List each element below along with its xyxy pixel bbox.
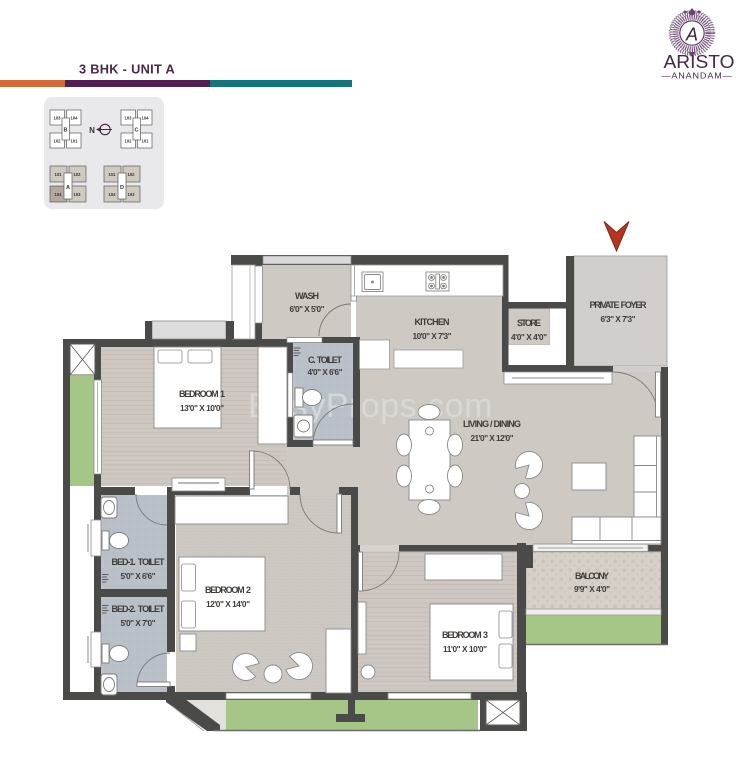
svg-text:4'0" X 4'0": 4'0" X 4'0" [511,332,547,342]
svg-text:102: 102 [128,172,136,177]
svg-text:3 BHK - UNIT A: 3 BHK - UNIT A [79,62,175,77]
svg-text:BEDROOM 1: BEDROOM 1 [179,389,225,399]
svg-text:BALCONY: BALCONY [575,571,609,581]
svg-text:104: 104 [142,116,150,121]
svg-text:5'0" X 6'6": 5'0" X 6'6" [121,571,156,581]
svg-text:102: 102 [54,139,62,144]
svg-text:101: 101 [55,172,63,177]
svg-text:ARISTO: ARISTO [664,51,735,72]
svg-text:10'0" X 7'3": 10'0" X 7'3" [413,331,452,341]
svg-text:101: 101 [142,139,150,144]
svg-text:21'0" X 12'0": 21'0" X 12'0" [471,433,514,443]
svg-text:11'0" X 10'0": 11'0" X 10'0" [443,644,487,654]
svg-text:D: D [120,185,124,191]
svg-text:12'0" X 14'0": 12'0" X 14'0" [206,599,250,609]
svg-text:6'3" X 7'3": 6'3" X 7'3" [601,314,636,324]
svg-text:103: 103 [74,192,82,197]
svg-text:N: N [89,126,95,135]
svg-text:BEDROOM 2: BEDROOM 2 [205,585,251,595]
svg-text:A: A [685,25,698,45]
svg-text:WASH: WASH [295,291,319,301]
svg-text:6'0" X 5'0": 6'0" X 5'0" [290,304,325,314]
svg-text:104: 104 [55,192,63,197]
svg-text:B: B [64,128,68,134]
svg-text:9'9" X 4'0": 9'9" X 4'0" [574,584,610,594]
svg-text:LIVING / DINING: LIVING / DINING [463,419,521,429]
svg-text:KITCHEN: KITCHEN [415,317,450,327]
svg-text:102: 102 [125,139,133,144]
svg-text:102: 102 [74,172,82,177]
svg-text:BED-2. TOILET: BED-2. TOILET [112,604,166,614]
svg-text:103: 103 [125,116,133,121]
svg-text:13'0" X 10'0": 13'0" X 10'0" [180,403,224,413]
svg-text:BEDROOM 3: BEDROOM 3 [442,630,488,640]
svg-text:—ANANDAM—: —ANANDAM— [662,71,733,81]
svg-text:BED-1. TOILET: BED-1. TOILET [112,557,166,567]
svg-text:4'0" X 6'6": 4'0" X 6'6" [308,367,343,377]
svg-text:104: 104 [109,192,117,197]
svg-text:5'0" X 7'0": 5'0" X 7'0" [121,618,156,628]
svg-text:103: 103 [128,192,136,197]
svg-text:A: A [66,185,70,191]
svg-text:103: 103 [54,116,62,121]
svg-text:104: 104 [71,116,79,121]
svg-text:101: 101 [71,139,79,144]
svg-text:C. TOILET: C. TOILET [308,355,343,365]
svg-text:C: C [135,128,139,134]
svg-text:101: 101 [109,172,117,177]
svg-text:STORE: STORE [517,318,541,328]
svg-text:PRIVATE FOYER: PRIVATE FOYER [590,300,648,310]
